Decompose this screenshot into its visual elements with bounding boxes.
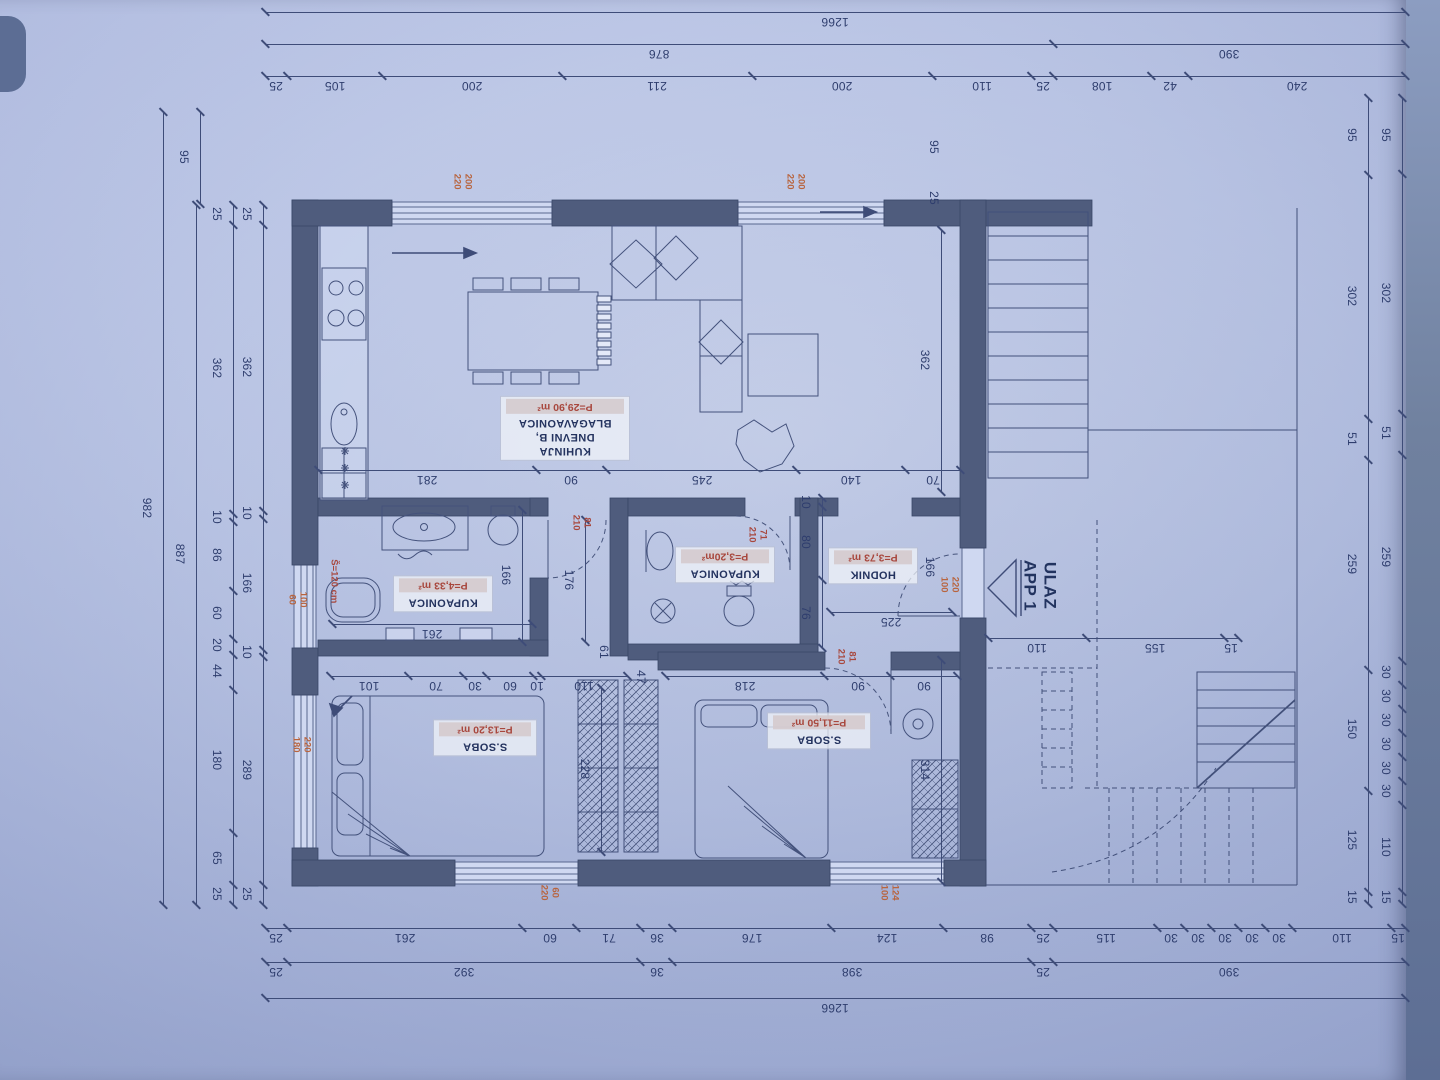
dim-label: 166 xyxy=(241,561,253,605)
room-label-living: KUHINJADNEVNI B,BLAGAVAONICAP=29,90 m² xyxy=(500,396,630,461)
room-label-bedroom2: S.SOBAP=11,50 m² xyxy=(767,712,871,749)
dim-label: 110 xyxy=(1320,932,1364,944)
dim-label: 70 xyxy=(911,474,955,486)
dim-line xyxy=(522,510,523,642)
dim-label: 302 xyxy=(1346,274,1358,318)
dim-label: 110 xyxy=(1380,825,1392,869)
dim-label: 95 xyxy=(1380,113,1392,157)
dim-line xyxy=(265,76,1405,77)
dim-label: 125 xyxy=(1346,818,1358,862)
room-area: P=29,90 m² xyxy=(506,399,624,414)
dim-label: 90 xyxy=(902,680,946,692)
room-area: P=4,33 m² xyxy=(399,578,487,593)
dim-label: 30 xyxy=(1380,769,1392,813)
dim-line xyxy=(332,624,532,625)
opening-size-mark: 200 220 xyxy=(451,152,472,212)
dim-line xyxy=(941,230,942,492)
opening-size-mark: 220 180 xyxy=(290,715,311,775)
dim-label: 25 xyxy=(1021,80,1065,92)
opening-size-mark: 200 220 xyxy=(784,152,805,212)
dim-label: 10 xyxy=(515,680,559,692)
dim-label: 70 xyxy=(414,680,458,692)
dim-label: 25 xyxy=(241,872,253,916)
dim-label: 281 xyxy=(405,474,449,486)
dim-label-single: 47 xyxy=(635,655,647,699)
dim-label: 876 xyxy=(637,48,681,60)
dim-label: 36 xyxy=(635,966,679,978)
dim-label: 25 xyxy=(254,80,298,92)
dim-label: 76 xyxy=(800,591,812,635)
dim-line xyxy=(263,205,264,905)
dim-label: 150 xyxy=(1346,707,1358,751)
dim-label: 289 xyxy=(241,748,253,792)
dim-label: 95 xyxy=(178,135,190,179)
dim-line xyxy=(665,676,957,677)
dim-label: 390 xyxy=(1207,48,1251,60)
dim-label: 180 xyxy=(211,738,223,782)
dim-label: 362 xyxy=(211,346,223,390)
room-name: HODNIK xyxy=(834,566,912,580)
room-area: P=3,73 m² xyxy=(834,550,912,565)
dim-label: 200 xyxy=(820,80,864,92)
dim-label: 25 xyxy=(211,192,223,236)
dim-line xyxy=(318,470,960,471)
dim-line xyxy=(330,676,627,677)
dim-label: 259 xyxy=(1346,542,1358,586)
dim-label: 245 xyxy=(680,474,724,486)
dim-label: 176 xyxy=(563,558,575,602)
room-label-hall: HODNIKP=3,73 m² xyxy=(828,547,918,584)
dim-label: 15 xyxy=(1346,875,1358,919)
room-label-bedroom1: S.SOBAP=13,20 m² xyxy=(433,719,537,756)
room-name: S.SOBA xyxy=(439,738,531,752)
dim-label: 25 xyxy=(254,932,298,944)
dim-label-single: 61 xyxy=(598,630,610,674)
dim-line xyxy=(196,205,197,905)
dim-line xyxy=(988,638,1238,639)
dim-label: 140 xyxy=(829,474,873,486)
room-area: P=11,50 m² xyxy=(773,715,865,730)
dim-label: 95 xyxy=(1346,113,1358,157)
dim-label: 155 xyxy=(1133,642,1177,654)
dim-label: 25 xyxy=(211,872,223,916)
opening-size-mark: 60 220 xyxy=(538,863,559,923)
dim-label: 15 xyxy=(1376,932,1420,944)
room-name: KUHINJA xyxy=(506,443,624,457)
dim-label: 51 xyxy=(1380,411,1392,455)
dim-label: 25 xyxy=(241,192,253,236)
dim-label: 887 xyxy=(174,532,186,576)
room-name: KUPAONICA xyxy=(399,594,487,608)
dim-label: 392 xyxy=(442,966,486,978)
dim-label: 261 xyxy=(383,932,427,944)
dim-label: 108 xyxy=(1080,80,1124,92)
room-name: BLAGAVAONICA xyxy=(506,415,624,429)
dim-label-single: 95 xyxy=(928,125,940,169)
dim-line xyxy=(941,660,942,882)
dim-line xyxy=(265,962,1405,963)
dim-label: 1266 xyxy=(813,16,857,28)
dim-line xyxy=(601,688,602,852)
dim-label: 25 xyxy=(254,966,298,978)
dim-label: 44 xyxy=(211,649,223,693)
dim-line xyxy=(265,928,1405,929)
opening-size-mark: Š=120 cm xyxy=(328,551,339,611)
dim-label: 200 xyxy=(450,80,494,92)
dim-label: 314 xyxy=(919,748,931,792)
dim-line xyxy=(265,998,1405,999)
dim-label: 10 xyxy=(241,630,253,674)
dim-label: 240 xyxy=(1275,80,1319,92)
room-label-bath1: KUPAONICAP=4,33 m² xyxy=(393,575,493,612)
opening-size-mark: 100 60 xyxy=(286,570,307,630)
entrance-line1: ULAZ xyxy=(1040,546,1060,626)
dim-label: 71 xyxy=(587,932,631,944)
dim-label: 15 xyxy=(1380,875,1392,919)
dim-line xyxy=(233,205,234,905)
dim-label: 982 xyxy=(141,486,153,530)
dim-label-single: 25 xyxy=(928,176,940,220)
room-name: S.SOBA xyxy=(773,731,865,745)
dim-label: 390 xyxy=(1207,966,1251,978)
dim-label: 98 xyxy=(965,932,1009,944)
dim-label: 228 xyxy=(579,747,591,791)
opening-size-mark: 220 100 xyxy=(938,555,959,615)
opening-size-mark: 124 100 xyxy=(878,863,899,923)
dim-label: 166 xyxy=(500,553,512,597)
dim-label: 362 xyxy=(241,345,253,389)
opening-size-mark: 81 210 xyxy=(835,627,856,687)
entrance-label: ULAZ APP 1 xyxy=(1020,546,1059,626)
dim-label: 10 xyxy=(241,491,253,535)
dim-label: 51 xyxy=(1346,417,1358,461)
dim-label: 10 xyxy=(800,480,812,524)
dim-label: 1266 xyxy=(813,1002,857,1014)
dim-label-single: 166 xyxy=(924,545,936,589)
room-name: KUPAONICA xyxy=(681,565,769,579)
room-label-bath2: KUPAONICAP=3,20m² xyxy=(675,546,775,583)
dim-line xyxy=(822,498,823,648)
dim-label: 115 xyxy=(1084,932,1128,944)
dim-label: 30 xyxy=(1257,932,1301,944)
dim-line xyxy=(265,12,1405,13)
dim-line xyxy=(200,112,201,204)
dim-label: 42 xyxy=(1148,80,1192,92)
dimension-labels: 1266876390251052002112001102510842240252… xyxy=(0,0,1440,1080)
dim-label: 124 xyxy=(865,932,909,944)
dim-label: 101 xyxy=(347,680,391,692)
dim-label: 261 xyxy=(410,628,454,640)
dim-label: 60 xyxy=(528,932,572,944)
dim-line xyxy=(830,612,952,613)
dim-label: 302 xyxy=(1380,271,1392,315)
floor-plan-photo: 1266876390251052002112001102510842240252… xyxy=(0,0,1440,1080)
opening-size-mark: 81 210 xyxy=(570,493,591,553)
dim-line xyxy=(163,112,164,905)
room-area: P=13,20 m² xyxy=(439,722,531,737)
dim-label: 90 xyxy=(549,474,593,486)
room-area: P=3,20m² xyxy=(681,549,769,564)
dim-label: 105 xyxy=(313,80,357,92)
dim-label: 110 xyxy=(960,80,1004,92)
dim-label: 225 xyxy=(869,616,913,628)
entrance-line2: APP 1 xyxy=(1020,546,1040,626)
room-name: DNEVNI B, xyxy=(506,429,624,443)
dim-label: 211 xyxy=(635,80,679,92)
dim-label: 36 xyxy=(635,932,679,944)
dim-label: 110 xyxy=(1015,642,1059,654)
dim-label: 176 xyxy=(730,932,774,944)
dim-label: 80 xyxy=(800,520,812,564)
dim-label: 25 xyxy=(1021,966,1065,978)
dim-line xyxy=(1368,98,1369,904)
dim-label: 86 xyxy=(211,533,223,577)
dim-label: 259 xyxy=(1380,535,1392,579)
dim-line xyxy=(265,44,1405,45)
dim-label: 398 xyxy=(830,966,874,978)
dim-label: 15 xyxy=(1209,642,1253,654)
dim-label: 218 xyxy=(723,680,767,692)
dim-label: 25 xyxy=(1021,932,1065,944)
dim-label: 362 xyxy=(919,338,931,382)
